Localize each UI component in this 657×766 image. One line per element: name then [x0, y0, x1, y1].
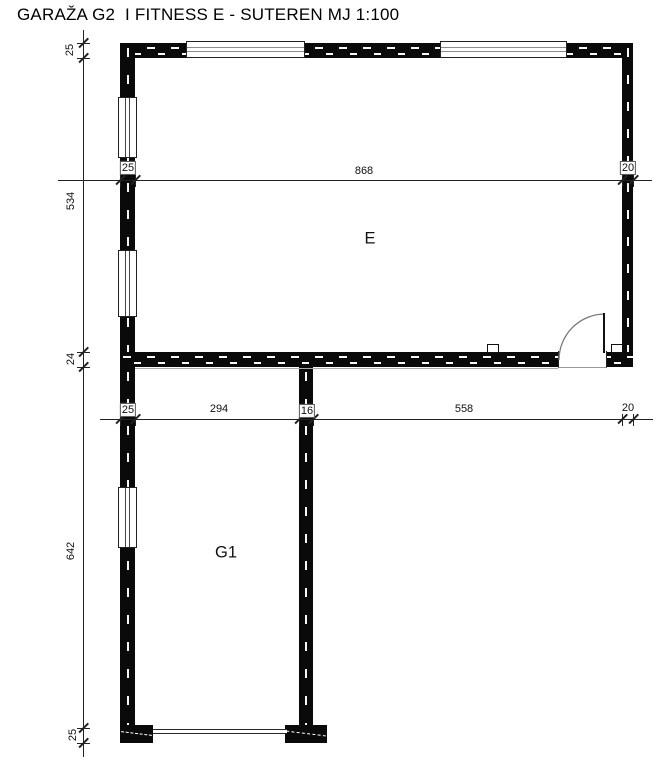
window-top-2 [440, 41, 567, 58]
dim-label-wall-16: 16 [299, 404, 315, 418]
wall-left-upper [120, 43, 135, 367]
hatch-line [121, 731, 152, 736]
wall-foot-right [285, 725, 327, 743]
window-left-2 [118, 250, 137, 317]
door-post-left [487, 344, 499, 353]
dim-line-mid [100, 419, 653, 420]
dim-label-25-bottom: 25 [67, 729, 79, 741]
dim-line-top [58, 180, 652, 181]
dim-label-558: 558 [455, 403, 473, 415]
wall-interior [299, 367, 313, 743]
door-post-right [611, 344, 623, 353]
dim-label-wall-25: 25 [120, 161, 136, 175]
window-glass [125, 488, 130, 547]
garage-door-line [153, 729, 287, 734]
floor-plan: GARAŽA G2 I FITNESS E - SUTEREN MJ 1:100 [0, 0, 657, 766]
window-glass [187, 47, 304, 52]
dim-label-868: 868 [355, 165, 373, 177]
room-label-g1: G1 [215, 544, 237, 563]
wall-left-lower [120, 367, 135, 743]
dim-label-534: 534 [65, 192, 77, 210]
drawing-title: GARAŽA G2 I FITNESS E - SUTEREN MJ 1:100 [17, 5, 399, 25]
room-label-e: E [364, 230, 375, 249]
dim-line-left [83, 30, 84, 757]
dim-label-24: 24 [65, 353, 77, 365]
window-glass [125, 251, 130, 316]
window-glass [125, 98, 130, 157]
dim-label-wall-20: 20 [620, 161, 636, 175]
door-leaf [603, 313, 605, 353]
wall-foot-left [120, 725, 153, 743]
dim-label-wall-25b: 25 [120, 403, 136, 417]
wall-right [622, 43, 633, 367]
window-left-1 [118, 97, 137, 158]
window-top-1 [186, 41, 305, 58]
door-swing-arc [558, 312, 606, 361]
window-left-3 [118, 487, 137, 548]
dim-label-wall-20b: 20 [621, 402, 635, 414]
dim-label-294: 294 [210, 403, 228, 415]
window-glass [441, 47, 566, 52]
hatch-line [286, 731, 326, 737]
dim-label-25-top: 25 [64, 44, 76, 56]
wall-middle [120, 352, 633, 367]
dim-label-642: 642 [65, 542, 77, 560]
slab-edge-line [135, 368, 558, 369]
